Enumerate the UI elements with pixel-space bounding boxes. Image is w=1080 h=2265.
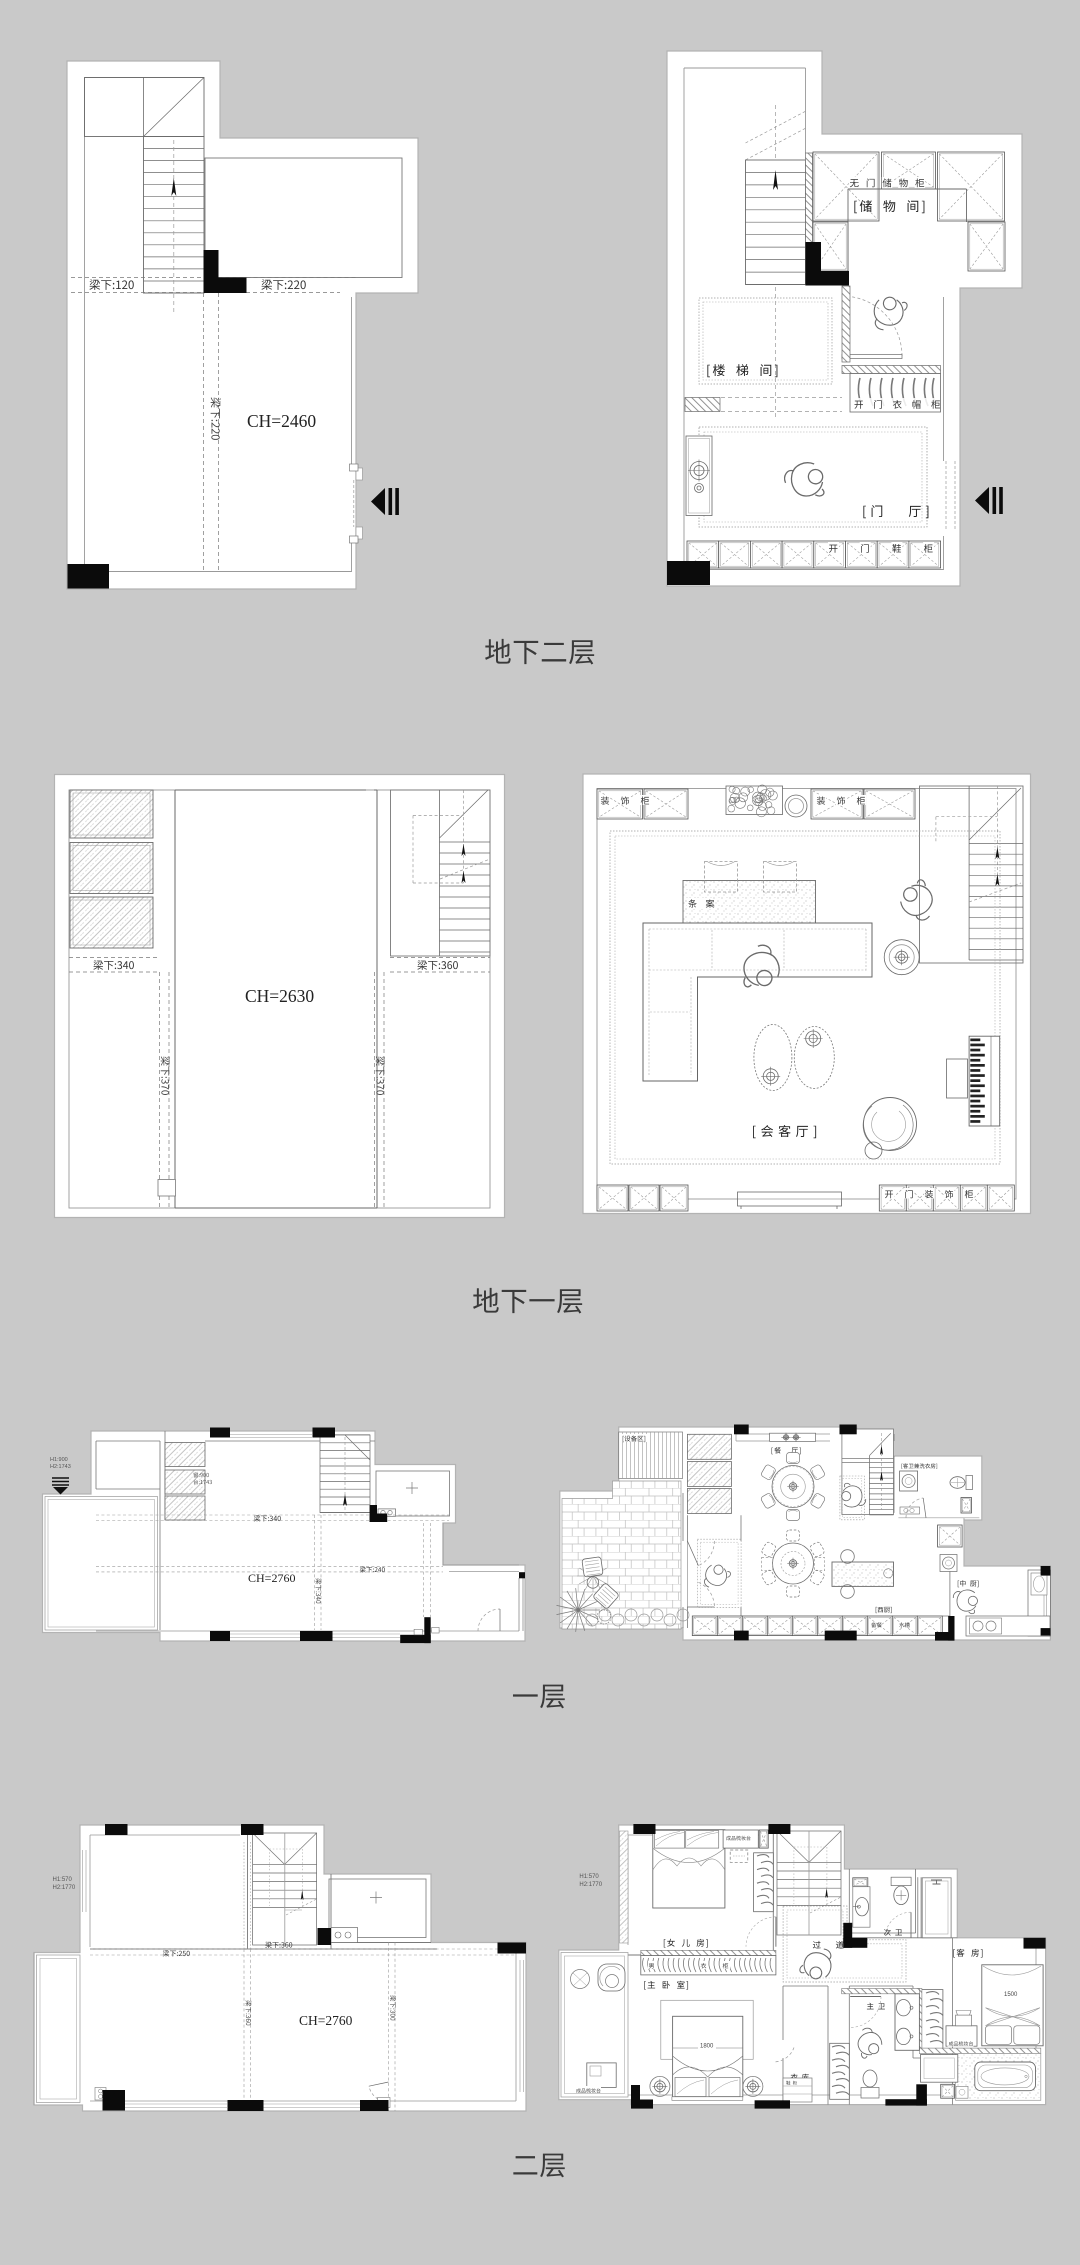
svg-text:H1:570: H1:570 [53, 1877, 73, 1883]
svg-text:CH=2760: CH=2760 [248, 1571, 295, 1585]
svg-text:CH=2760: CH=2760 [299, 2013, 353, 2028]
svg-text:CH=2460: CH=2460 [247, 411, 316, 431]
svg-text:H2:1743: H2:1743 [50, 1464, 71, 1470]
svg-text:H1:900: H1:900 [50, 1457, 68, 1463]
svg-text:H1:570: H1:570 [579, 1874, 599, 1880]
svg-text:1500: 1500 [1004, 1992, 1018, 1998]
svg-text:1800: 1800 [700, 2044, 714, 2050]
svg-text:H2:1770: H2:1770 [579, 1882, 602, 1888]
svg-text:H2:1770: H2:1770 [53, 1885, 76, 1891]
svg-text:CH=2630: CH=2630 [245, 986, 314, 1006]
